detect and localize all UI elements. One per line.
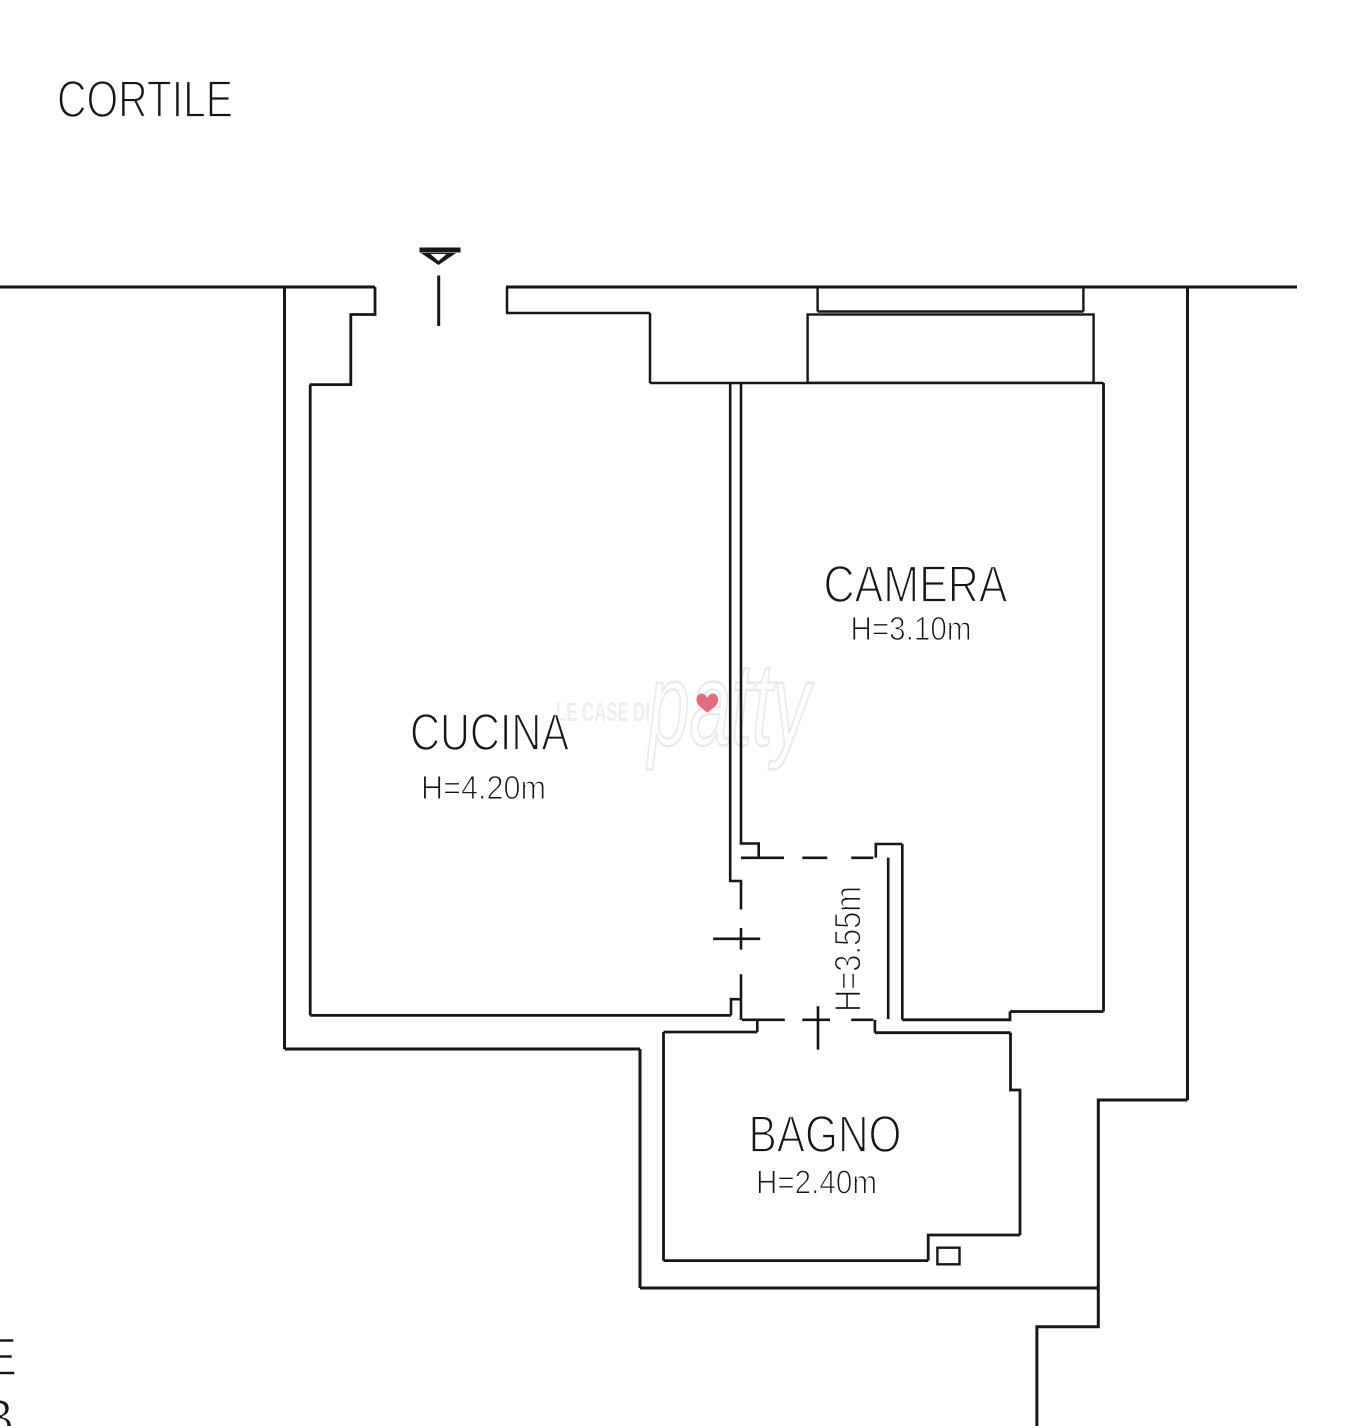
svg-text:H=2.40m: H=2.40m <box>756 1164 877 1201</box>
svg-text:H=3.55m: H=3.55m <box>828 886 869 1012</box>
svg-text:B: B <box>0 1389 14 1426</box>
svg-text:H=3.10m: H=3.10m <box>851 610 972 647</box>
svg-text:CAMERA: CAMERA <box>824 556 1008 614</box>
svg-text:BAGNO: BAGNO <box>749 1106 902 1164</box>
svg-text:CORTILE: CORTILE <box>57 71 233 129</box>
svg-text:H=4.20m: H=4.20m <box>421 769 546 806</box>
svg-text:CUCINA: CUCINA <box>410 704 569 762</box>
svg-text:E: E <box>0 1328 17 1387</box>
svg-text:LE CASE DI: LE CASE DI <box>556 697 650 727</box>
